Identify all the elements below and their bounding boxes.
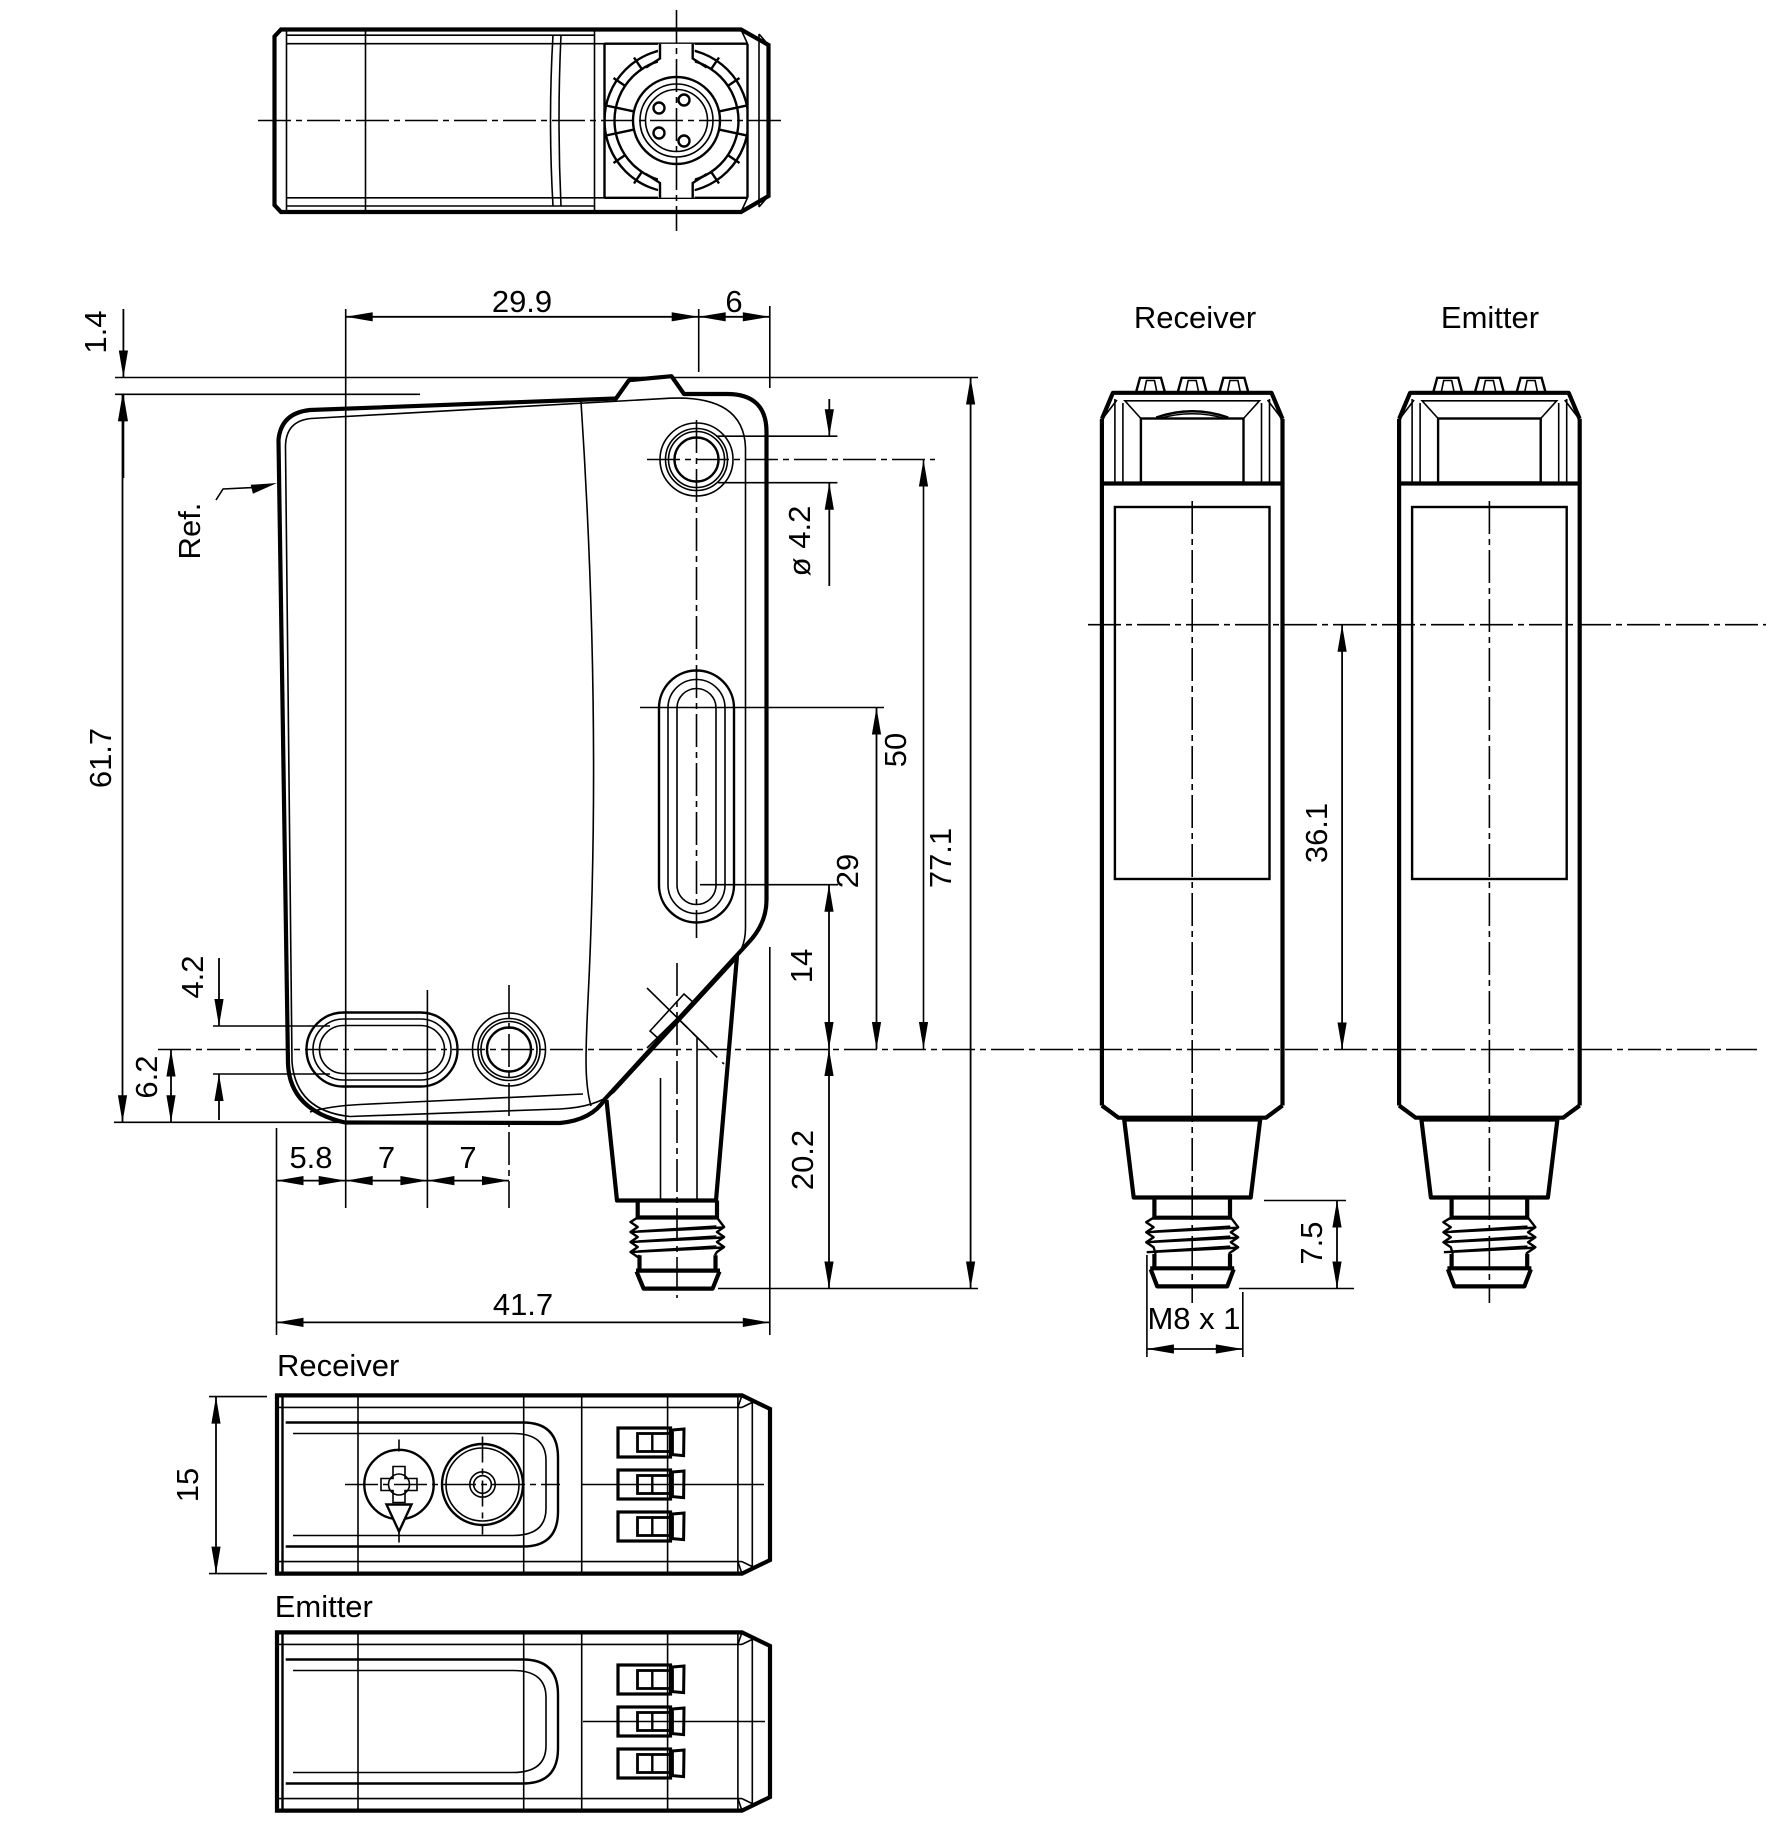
svg-text:4.2: 4.2	[175, 955, 210, 998]
svg-text:Emitter: Emitter	[1441, 300, 1539, 335]
svg-text:29.9: 29.9	[492, 284, 552, 319]
svg-text:Ref.: Ref.	[172, 503, 207, 560]
svg-text:15: 15	[170, 1468, 205, 1502]
svg-text:41.7: 41.7	[493, 1287, 553, 1322]
svg-text:61.7: 61.7	[83, 728, 118, 788]
svg-text:77.1: 77.1	[923, 828, 958, 888]
svg-text:7: 7	[378, 1140, 395, 1175]
svg-text:M8 x 1: M8 x 1	[1147, 1301, 1240, 1336]
svg-text:20.2: 20.2	[785, 1130, 820, 1190]
svg-text:6: 6	[725, 284, 742, 319]
svg-text:14: 14	[784, 949, 819, 983]
svg-text:6.2: 6.2	[129, 1055, 164, 1098]
svg-text:Receiver: Receiver	[277, 1348, 399, 1383]
svg-text:36.1: 36.1	[1299, 803, 1334, 863]
svg-text:50: 50	[878, 733, 913, 767]
svg-text:5.8: 5.8	[289, 1140, 332, 1175]
svg-text:ø 4.2: ø 4.2	[782, 506, 817, 577]
svg-text:29: 29	[830, 854, 865, 888]
svg-text:Receiver: Receiver	[1134, 300, 1256, 335]
svg-text:7.5: 7.5	[1294, 1221, 1329, 1264]
svg-text:Emitter: Emitter	[275, 1589, 373, 1624]
svg-text:7: 7	[459, 1140, 476, 1175]
svg-text:1.4: 1.4	[78, 310, 113, 353]
